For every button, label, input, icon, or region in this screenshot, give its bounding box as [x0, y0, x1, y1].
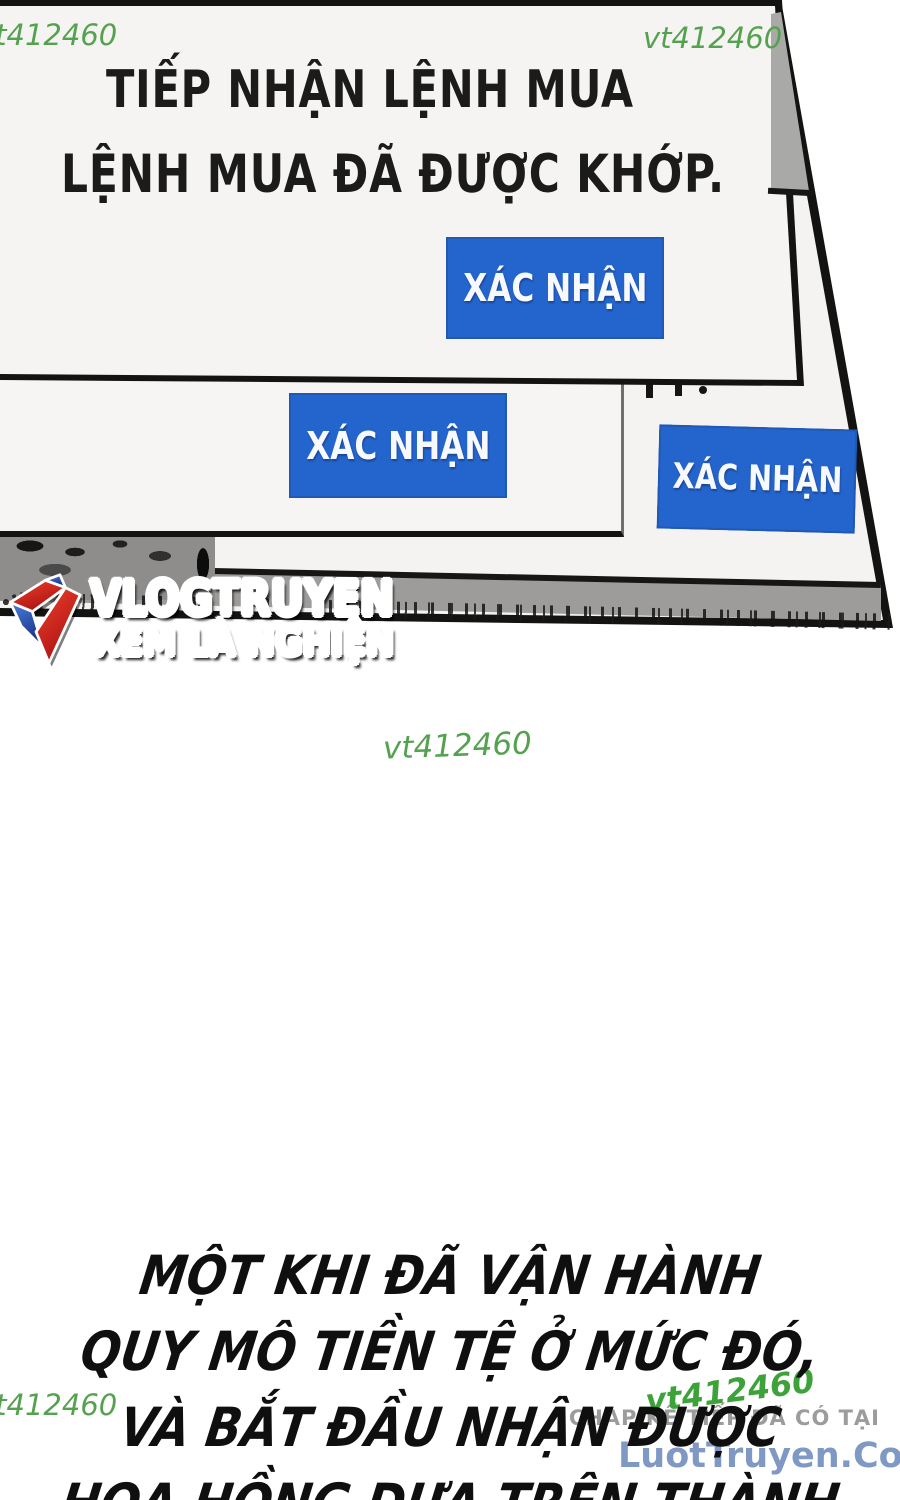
confirm-button-2-label: XÁC NHẬN: [306, 424, 490, 468]
confirm-button-3-label: XÁC NHẬN: [672, 457, 843, 501]
confirm-button-1[interactable]: XÁC NHẬN: [446, 237, 664, 339]
vlogtruyen-logo-icon: [2, 570, 94, 666]
narration-line-1: MỘT KHI ĐÃ VẬN HÀNH: [0, 1238, 900, 1314]
confirm-button-1-label: XÁC NHẬN: [463, 266, 647, 310]
confirm-button-2[interactable]: XÁC NHẬN: [289, 393, 507, 498]
narration-text: MỘT KHI ĐÃ VẬN HÀNH QUY MÔ TIỀN TỆ Ở MỨC…: [0, 1238, 900, 1500]
occluded-text-remnant: [699, 386, 707, 394]
dialog-1-title: TIẾP NHẬN LỆNH MUA: [0, 60, 740, 120]
dialog-1-message: LỆNH MUA ĐÃ ĐƯỢC KHỚP.: [0, 144, 718, 205]
narration-line-3: VÀ BẮT ĐẦU NHẬN ĐƯỢC: [0, 1390, 900, 1466]
narration-line-4: HOA HỒNG DỰA TRÊN THÀNH: [0, 1466, 900, 1500]
confirm-button-3[interactable]: XÁC NHẬN: [657, 424, 858, 533]
vlogtruyen-logo-subtitle: XEM LÀ NGHIỆN: [94, 620, 443, 665]
comic-page: XÁC NHẬN XÁC NHẬN TIẾP NHẬN LỆNH MUA LỆN…: [0, 0, 900, 1500]
narration-line-2: QUY MÔ TIỀN TỆ Ở MỨC ĐÓ,: [0, 1314, 900, 1390]
vlogtruyen-logo-title: VLOGTRUYEN: [90, 571, 452, 627]
watermark-top-left: vt412460: [0, 18, 117, 52]
watermark-center: vt412460: [382, 725, 532, 766]
watermark-top-right: vt412460: [643, 21, 782, 55]
